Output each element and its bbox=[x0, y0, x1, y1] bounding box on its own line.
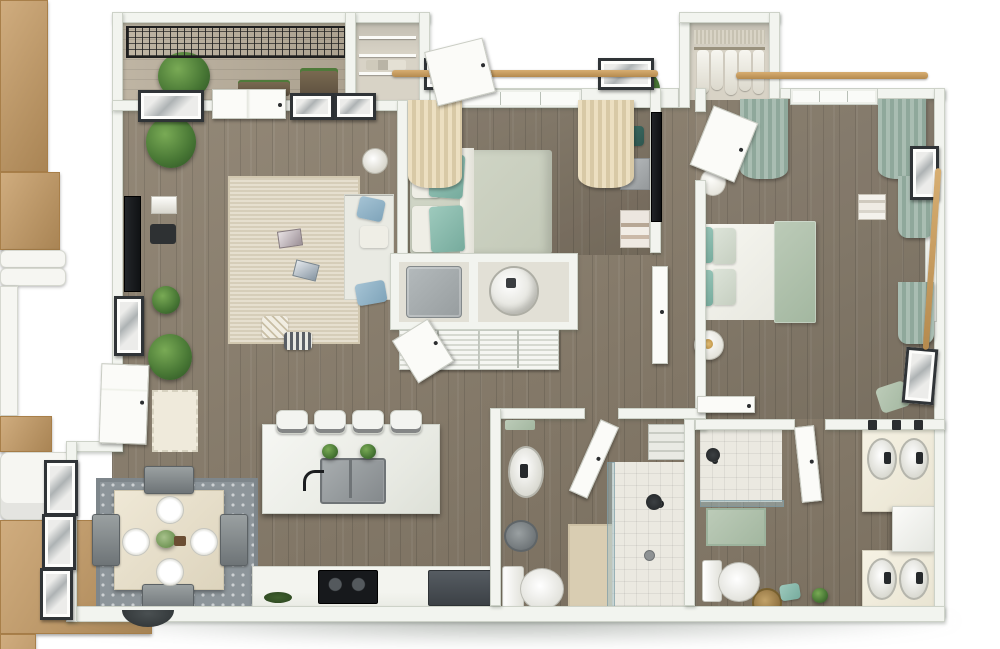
bedroom1-desk bbox=[0, 634, 36, 649]
bath2-shower-head bbox=[706, 448, 720, 462]
dresser-books bbox=[858, 194, 886, 220]
entry-door bbox=[99, 363, 150, 445]
wall-bathroom1-north-left bbox=[490, 408, 585, 419]
living-west-wall-art bbox=[114, 296, 144, 356]
washer-unit bbox=[406, 266, 462, 318]
hanging-clothes-2 bbox=[711, 50, 723, 90]
living-tv bbox=[124, 196, 141, 292]
place-setting-north bbox=[156, 496, 184, 524]
bath2-sink-sw bbox=[867, 558, 897, 600]
wall-bathrooms-divider bbox=[684, 419, 695, 606]
bath2-faucet-sw bbox=[884, 572, 891, 584]
sofa-arm-south bbox=[0, 268, 66, 286]
bedroom2-sage-throw bbox=[774, 221, 816, 323]
cooktop bbox=[318, 570, 378, 604]
bath2-sink-ne bbox=[899, 438, 929, 480]
bath2-towel-hook-1 bbox=[868, 420, 877, 430]
bath2-shower-floor bbox=[700, 428, 782, 502]
armchair-pillow-striped bbox=[284, 332, 312, 350]
bar-stool-2 bbox=[314, 410, 346, 434]
dining-chair-west bbox=[92, 514, 120, 566]
counter-produce bbox=[264, 592, 292, 603]
dining-wall-art-1 bbox=[44, 460, 78, 516]
bedroom2-south-door bbox=[697, 396, 755, 413]
bath2-shower-glass bbox=[700, 500, 784, 507]
console-tray bbox=[150, 224, 176, 244]
bedroom1-curtain-left bbox=[408, 100, 462, 188]
bath2-bath-mat bbox=[706, 508, 766, 546]
dining-wall-art-2 bbox=[42, 514, 76, 570]
console-teal-towels bbox=[779, 583, 801, 602]
bedroom1-curtain-right bbox=[578, 100, 634, 188]
console-books bbox=[151, 196, 177, 214]
bath1-shower-floor bbox=[612, 462, 684, 606]
closet-a-wire-shelf-2 bbox=[359, 54, 416, 57]
island-sink bbox=[320, 458, 386, 504]
closet-a-wire-shelf-1 bbox=[359, 36, 416, 39]
living-room-rug bbox=[228, 176, 360, 344]
dining-chair-north bbox=[144, 466, 194, 494]
bath1-linen-shelf bbox=[648, 424, 686, 460]
utility-louver-door-right bbox=[479, 330, 559, 370]
balcony-door bbox=[212, 89, 286, 119]
water-heater bbox=[489, 266, 539, 316]
bath1-laundry-basket bbox=[504, 520, 538, 552]
wall-bathroom1-west bbox=[490, 408, 501, 606]
island-herb-1 bbox=[322, 444, 338, 459]
bar-stool-1 bbox=[276, 410, 308, 434]
sofa-pillow-white bbox=[360, 226, 388, 248]
bedroom2-curtain-rod-north bbox=[736, 72, 928, 79]
wall-bathroom1-north-right bbox=[618, 408, 706, 419]
dining-centerpiece-box bbox=[174, 536, 186, 546]
bath2-faucet-nw bbox=[884, 452, 891, 464]
bath1-faucet bbox=[520, 464, 528, 478]
wall-bathroom2-north-right bbox=[825, 419, 945, 430]
entry-doormat bbox=[152, 390, 198, 452]
wall-living-bedroom1 bbox=[397, 100, 408, 255]
place-setting-east bbox=[190, 528, 218, 556]
wall-south-exterior bbox=[66, 606, 945, 622]
wall-walkin-closet-right bbox=[769, 12, 780, 99]
wall-bedroom2-west-upper bbox=[695, 88, 706, 112]
console-plant bbox=[812, 588, 828, 603]
place-setting-south bbox=[156, 558, 184, 586]
hanging-clothes-4 bbox=[739, 50, 751, 91]
hanging-clothes-3 bbox=[725, 50, 737, 95]
closet-b-shelf bbox=[694, 30, 765, 44]
bedroom2-pillow-sage-2 bbox=[712, 269, 736, 305]
bar-stool-3 bbox=[352, 410, 384, 434]
bar-stool-4 bbox=[390, 410, 422, 434]
island-faucet bbox=[303, 470, 324, 491]
living-north-wall-art-small-1 bbox=[290, 93, 334, 120]
hallway-open-door bbox=[652, 266, 668, 364]
closet-a-stored-items bbox=[366, 60, 406, 70]
bedroom1-pillow-teal-2 bbox=[429, 205, 465, 253]
bath2-sink-se bbox=[899, 558, 929, 600]
island-herb-2 bbox=[360, 444, 376, 459]
place-setting-west bbox=[122, 528, 150, 556]
side-table-lamp bbox=[362, 148, 388, 174]
bath1-towel bbox=[505, 420, 535, 430]
sofa-arm-north bbox=[0, 250, 66, 268]
bedroom1-tv bbox=[651, 112, 662, 222]
dining-wall-art-3 bbox=[40, 568, 73, 620]
bath2-sink-nw bbox=[867, 438, 897, 480]
desk-photo-prints bbox=[620, 210, 650, 248]
bedroom2-window-north bbox=[790, 88, 878, 105]
balcony-railing bbox=[126, 26, 346, 58]
island-sink-divider bbox=[349, 460, 352, 498]
dining-centerpiece bbox=[156, 530, 176, 548]
bath2-towel-hook-2 bbox=[892, 420, 901, 430]
living-plant-south bbox=[148, 334, 192, 380]
bath2-faucet-se bbox=[916, 572, 923, 584]
living-north-wall-art-small-2 bbox=[334, 93, 376, 120]
water-heater-valve bbox=[506, 278, 516, 288]
bath2-storage-cabinet bbox=[892, 506, 936, 552]
slate-appliance bbox=[428, 570, 496, 606]
coffee-table-magazine-1 bbox=[277, 228, 303, 248]
wall-bathroom2-north-left bbox=[695, 419, 795, 430]
bedroom2-leaning-frame bbox=[902, 347, 939, 406]
sofa-side-table bbox=[0, 416, 52, 452]
balcony-planter-2 bbox=[300, 68, 338, 96]
wall-walkin-closet-left bbox=[679, 12, 690, 108]
living-north-wall-art-large bbox=[138, 90, 204, 122]
living-plant-north bbox=[146, 116, 196, 168]
bath2-toilet-bowl bbox=[718, 562, 760, 602]
bath1-shower-glass bbox=[607, 462, 615, 608]
bath2-towel-hook-3 bbox=[914, 420, 923, 430]
media-console bbox=[0, 0, 48, 172]
sofa-back bbox=[0, 286, 18, 416]
bath1-shower-drain bbox=[644, 550, 655, 561]
bath1-shower-head bbox=[646, 494, 662, 510]
bedroom2-pillow-sage-1 bbox=[712, 228, 736, 264]
wall-bedroom2-west-lower bbox=[695, 180, 706, 430]
dining-chair-east bbox=[220, 514, 248, 566]
bath2-faucet-ne bbox=[916, 452, 923, 464]
floor-plan-canvas bbox=[0, 0, 1000, 649]
bath1-toilet-bowl bbox=[520, 568, 564, 610]
wall-top-balcony-block bbox=[112, 12, 430, 23]
louver-door-split-right bbox=[517, 330, 519, 368]
coffee-table bbox=[0, 172, 60, 250]
wall-walkin-closet-top bbox=[679, 12, 780, 23]
console-plant-pot bbox=[152, 286, 180, 314]
